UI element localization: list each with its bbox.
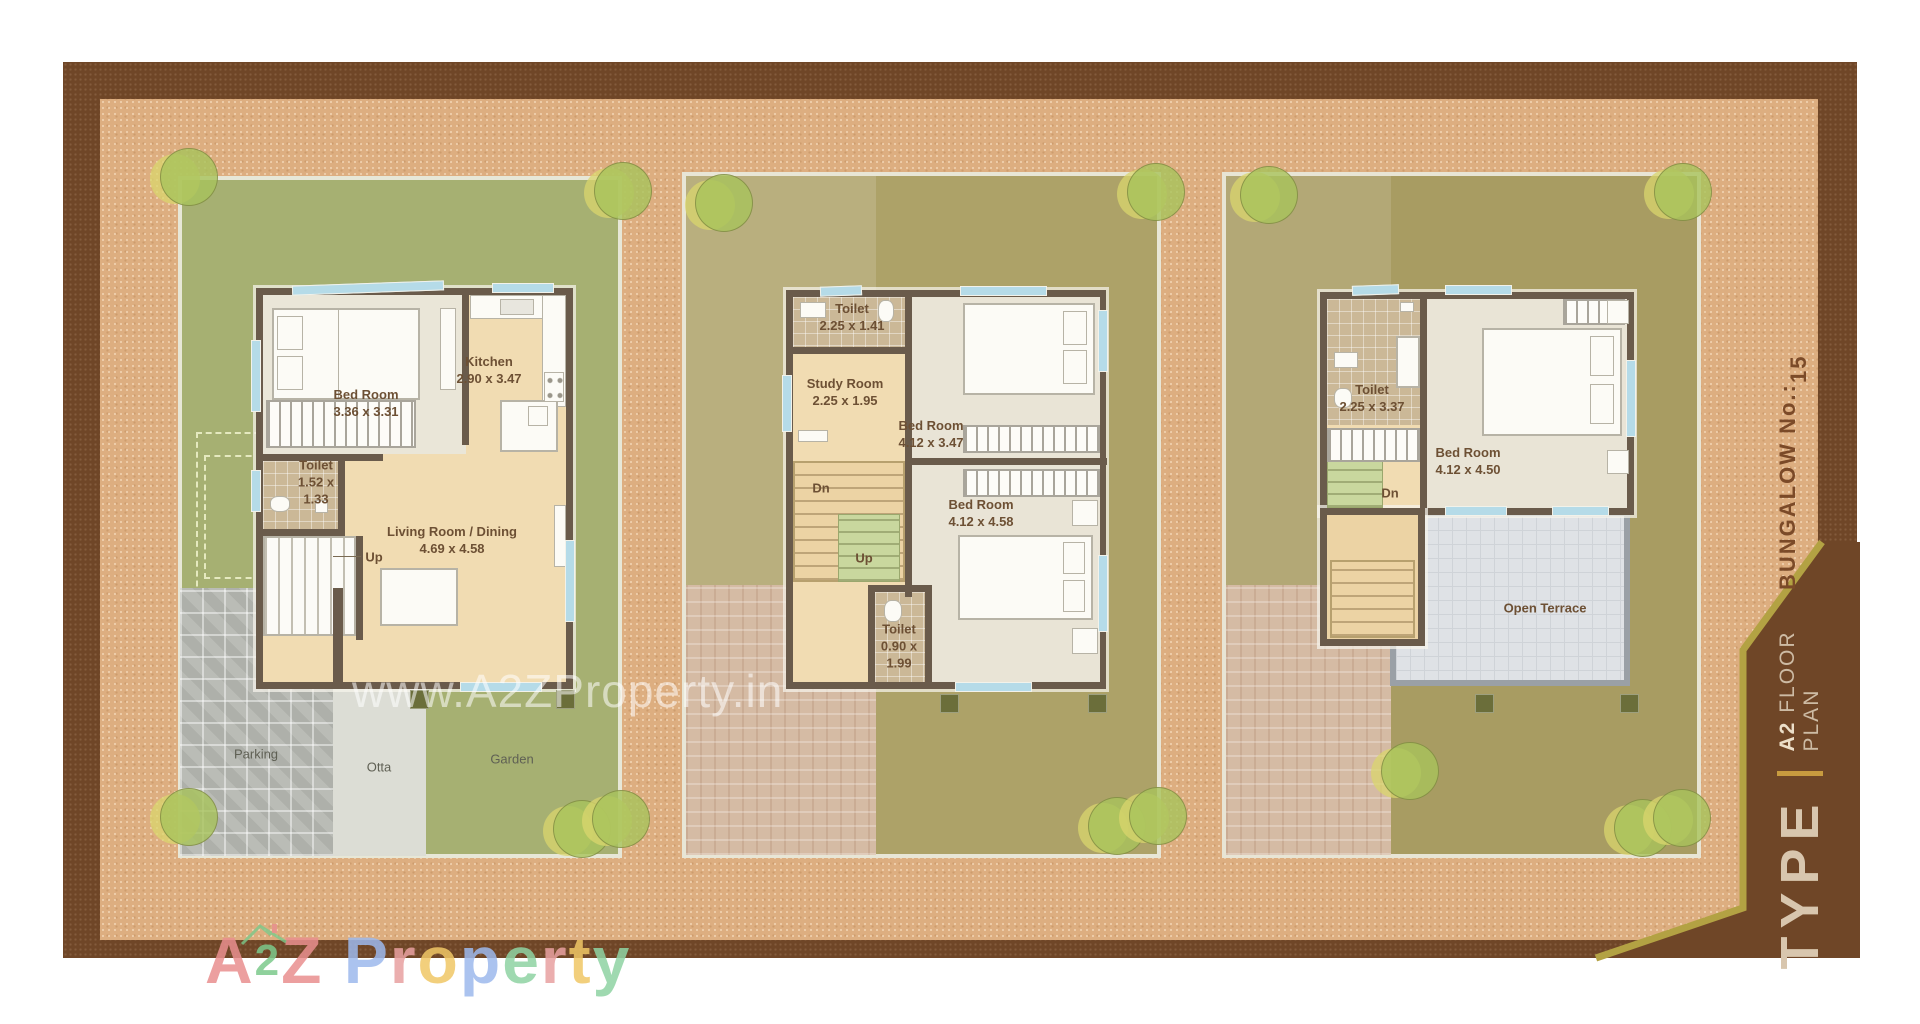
wall (868, 585, 928, 592)
floor-code: A2 (1776, 721, 1799, 752)
dresser (440, 308, 456, 390)
study-label: Study Room 2.25 x 1.95 (807, 376, 884, 410)
toilet-label: Toilet 2.25 x 1.41 (819, 301, 884, 335)
tree-icon (685, 174, 747, 236)
pillow (1063, 542, 1085, 574)
tree-icon (1117, 163, 1179, 225)
tree-icon (1230, 166, 1292, 228)
room-dims: 3.36 x 3.31 (333, 404, 398, 421)
plot-marker (940, 694, 959, 713)
kitchen-sink-icon (500, 299, 534, 315)
pillow (1063, 580, 1085, 612)
side-table (1607, 450, 1629, 474)
watermark-letter: P (344, 923, 390, 997)
window (820, 285, 862, 296)
window (251, 340, 261, 412)
tree-icon (582, 790, 644, 852)
wall (1420, 299, 1427, 508)
pillow (1063, 311, 1087, 345)
bungalow-number: 15 (1786, 355, 1812, 383)
window (1352, 284, 1399, 296)
geyser-icon (1400, 302, 1414, 312)
room-name: Bed Room (333, 387, 398, 404)
window (251, 470, 261, 512)
plan-word: PLAN (1800, 630, 1824, 751)
room-name: Kitchen (456, 354, 521, 371)
stairs-dn-lower (1330, 560, 1415, 638)
stairs-dn-label: Dn (1381, 486, 1398, 501)
bedroom1-label: Bed Room 4.12 x 3.47 (898, 418, 963, 452)
room-dims: 4.12 x 3.47 (898, 435, 963, 452)
room-name: Open Terrace (1504, 601, 1587, 618)
gold-divider (1777, 772, 1823, 777)
wall (793, 347, 912, 354)
wall (912, 458, 1107, 465)
room-dims: 4.69 x 4.58 (387, 541, 517, 558)
watermark-letter: p (460, 923, 502, 997)
shower (1396, 336, 1420, 388)
room-dims: 2.25 x 1.41 (819, 318, 884, 335)
window (1445, 285, 1512, 295)
open-terrace (1390, 510, 1630, 686)
bottom-watermark: A2Z Property (205, 922, 631, 998)
room-name: Toilet (881, 622, 917, 639)
tree-icon (1119, 787, 1181, 849)
living-label: Living Room / Dining 4.69 x 4.58 (387, 524, 517, 558)
room-name: Toilet (1339, 382, 1404, 399)
tree-icon (584, 162, 646, 224)
window (492, 283, 554, 293)
room-name: Bed Room (948, 497, 1013, 514)
window (1098, 310, 1108, 372)
room-dims: 0.90 x (881, 639, 917, 656)
wall (925, 585, 932, 685)
room-dims: 4.12 x 4.58 (948, 514, 1013, 531)
pillow (277, 356, 303, 390)
room-name: Toilet (819, 301, 884, 318)
watermark-letter (323, 923, 343, 997)
tree-icon (1371, 742, 1433, 804)
bungalow-number-text: BUNGALOW No.:15 (1760, 306, 1816, 590)
bed-divider (338, 310, 339, 398)
window (1626, 360, 1636, 437)
dining-chair (528, 406, 548, 426)
watermark-letter: o (418, 923, 460, 997)
room-name: Toilet (298, 458, 334, 475)
plot-marker (1088, 694, 1107, 713)
watermark-letter: t (569, 923, 593, 997)
tree-icon (150, 148, 212, 210)
wall (333, 588, 343, 689)
floor-line: A2 FLOOR (1776, 630, 1800, 751)
wall (263, 529, 345, 536)
toilet2-label: Toilet 0.90 x 1.99 (881, 622, 917, 673)
washbasin-icon (1334, 352, 1358, 368)
pillow (277, 316, 303, 350)
window (960, 286, 1047, 296)
room-name: Study Room (807, 376, 884, 393)
wardrobe (1327, 428, 1420, 462)
otta-label: Otta (367, 760, 392, 775)
study-desk (798, 430, 828, 442)
pillow (1063, 350, 1087, 384)
wc-icon (270, 496, 290, 512)
toilet-label: Toilet 2.25 x 3.37 (1339, 382, 1404, 416)
terrace-door (1445, 506, 1507, 516)
stairs-dn-label: Dn (812, 481, 829, 496)
wall (338, 461, 345, 536)
room-name: Living Room / Dining (387, 524, 517, 541)
center-watermark: www.A2ZProperty.in (352, 664, 783, 718)
sofa (380, 568, 458, 626)
wc-icon (884, 600, 902, 622)
wall (356, 536, 363, 640)
tree-icon (1643, 789, 1705, 851)
floor-word: FLOOR (1776, 630, 1799, 712)
room-dims: 2.25 x 1.95 (807, 393, 884, 410)
bedroom-label: Bed Room 3.36 x 3.31 (333, 387, 398, 421)
stairs-up-label: Up (365, 550, 382, 565)
open-terrace-label: Open Terrace (1504, 601, 1587, 618)
wall (868, 585, 875, 685)
stairs-up-label: Up (855, 551, 872, 566)
watermark-letter: A (205, 923, 255, 997)
type-word: TYPE (1769, 797, 1831, 970)
stairs-up-green (838, 514, 900, 582)
pillow (1590, 336, 1614, 376)
room-name: Bed Room (1435, 445, 1500, 462)
watermark-letter: 2 (255, 936, 281, 985)
toilet-label: Toilet 1.52 x 1.33 (298, 458, 334, 509)
room-name: Bed Room (898, 418, 963, 435)
side-table (1072, 628, 1098, 654)
room-dims: 1.52 x (298, 475, 334, 492)
stairs-leader-line (333, 556, 361, 557)
watermark-letter: r (390, 923, 418, 997)
plot-marker (1620, 694, 1639, 713)
terrace-door (1552, 506, 1609, 516)
window (782, 375, 792, 432)
window (1098, 555, 1108, 632)
room-dims: 1.99 (881, 655, 917, 672)
bungalow-label: BUNGALOW No.: (1775, 383, 1801, 590)
wardrobe (963, 425, 1100, 453)
room-dims: 4.12 x 4.50 (1435, 462, 1500, 479)
floor-plan-lines: A2 FLOOR PLAN (1776, 630, 1824, 751)
watermark-letter: r (541, 923, 569, 997)
watermark-letter: y (593, 923, 632, 997)
room-dims: 1.33 (298, 491, 334, 508)
watermark-letter: Z (281, 923, 323, 997)
tree-icon (1644, 163, 1706, 225)
garden-label: Garden (490, 752, 533, 767)
side-table (1607, 300, 1629, 324)
room-dims: 2.90 x 3.47 (456, 371, 521, 388)
window (955, 682, 1032, 692)
watermark-letter: e (502, 923, 541, 997)
bedroom-label: Bed Room 4.12 x 4.50 (1435, 445, 1500, 479)
plot-marker (1475, 694, 1494, 713)
parking-label: Parking (234, 747, 278, 762)
tree-icon (150, 788, 212, 850)
kitchen-label: Kitchen 2.90 x 3.47 (456, 354, 521, 388)
bedroom2-label: Bed Room 4.12 x 4.58 (948, 497, 1013, 531)
floor-plan-sheet: Bed Room 3.36 x 3.31 Kitchen 2.90 x 3.47… (0, 0, 1920, 1024)
wardrobe (963, 469, 1100, 497)
pillow (1590, 384, 1614, 424)
side-table (1072, 500, 1098, 526)
type-floor-plan-text: TYPE A2 FLOOR PLAN (1745, 590, 1855, 1010)
window (565, 540, 575, 622)
room-dims: 2.25 x 3.37 (1339, 399, 1404, 416)
stove-icon (544, 372, 564, 402)
